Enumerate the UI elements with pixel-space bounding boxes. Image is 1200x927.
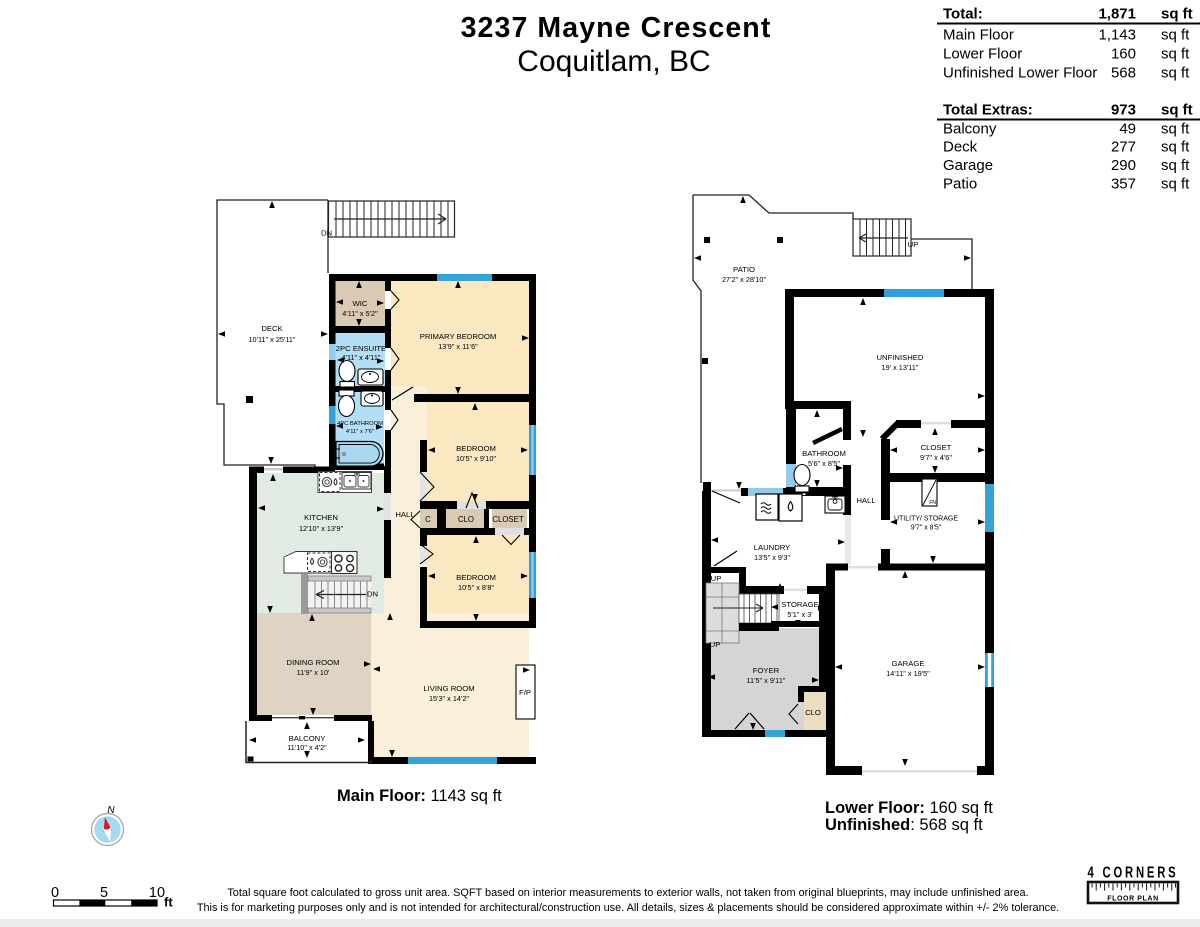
svg-text:UP: UP bbox=[710, 640, 721, 649]
svg-text:HALL: HALL bbox=[395, 510, 415, 519]
svg-text:N: N bbox=[107, 805, 115, 816]
svg-text:9'7" x 8'5": 9'7" x 8'5" bbox=[911, 525, 942, 532]
svg-text:160: 160 bbox=[1111, 46, 1136, 63]
svg-text:1,871: 1,871 bbox=[1098, 6, 1136, 23]
svg-text:DN: DN bbox=[321, 229, 332, 238]
svg-text:10'5" x 8'8": 10'5" x 8'8" bbox=[458, 583, 494, 592]
svg-text:5: 5 bbox=[100, 885, 108, 901]
svg-text:sq ft: sq ft bbox=[1161, 46, 1190, 63]
svg-text:3237 Mayne Crescent: 3237 Mayne Crescent bbox=[461, 12, 772, 44]
svg-text:Deck: Deck bbox=[943, 139, 978, 156]
svg-text:9'7" x 4'6": 9'7" x 4'6" bbox=[920, 453, 952, 462]
svg-text:sq ft: sq ft bbox=[1161, 65, 1190, 82]
svg-text:This is for marketing purposes: This is for marketing purposes only and … bbox=[197, 902, 1059, 914]
svg-text:19' x 13'11": 19' x 13'11" bbox=[882, 363, 919, 372]
svg-text:sq ft: sq ft bbox=[1161, 176, 1190, 193]
svg-text:UP: UP bbox=[711, 574, 722, 583]
svg-text:CLO: CLO bbox=[805, 708, 821, 717]
svg-text:CLO: CLO bbox=[458, 515, 474, 524]
svg-text:CLOSET: CLOSET bbox=[921, 443, 952, 452]
svg-text:Lower Floor: Lower Floor bbox=[943, 46, 1022, 63]
svg-text:FOYER: FOYER bbox=[753, 666, 780, 675]
svg-text:DINING ROOM: DINING ROOM bbox=[287, 658, 340, 667]
svg-text:1,143: 1,143 bbox=[1098, 27, 1136, 44]
svg-text:12'10" x 13'9": 12'10" x 13'9" bbox=[299, 524, 343, 533]
svg-text:HALL: HALL bbox=[856, 496, 876, 505]
svg-text:LIVING ROOM: LIVING ROOM bbox=[423, 684, 474, 693]
svg-text:11'10" x 4'2": 11'10" x 4'2" bbox=[287, 743, 327, 752]
svg-text:5'6" x 8'5": 5'6" x 8'5" bbox=[808, 459, 840, 468]
svg-text:Main Floor: Main Floor bbox=[943, 27, 1014, 44]
svg-text:10'5" x 9'10": 10'5" x 9'10" bbox=[456, 454, 496, 463]
svg-text:STORAGE: STORAGE bbox=[781, 600, 818, 609]
svg-text:Unfinished: 568 sq ft: Unfinished: 568 sq ft bbox=[825, 816, 983, 834]
svg-text:F/P: F/P bbox=[519, 688, 531, 697]
svg-text:Total square foot calculated t: Total square foot calculated to gross un… bbox=[227, 887, 1028, 899]
svg-text:4'11" x 4'11": 4'11" x 4'11" bbox=[342, 353, 381, 362]
svg-text:sq ft: sq ft bbox=[1161, 6, 1193, 23]
svg-text:FN: FN bbox=[929, 500, 936, 506]
svg-text:10'11" x 25'11": 10'11" x 25'11" bbox=[248, 335, 295, 344]
svg-text:CLOSET: CLOSET bbox=[492, 515, 523, 524]
svg-text:4'11" x 7'6": 4'11" x 7'6" bbox=[346, 429, 374, 435]
svg-text:0: 0 bbox=[51, 885, 59, 901]
svg-text:PATIO: PATIO bbox=[733, 265, 755, 274]
svg-text:KITCHEN: KITCHEN bbox=[304, 513, 338, 522]
svg-text:UTILITY/ STORAGE: UTILITY/ STORAGE bbox=[894, 516, 958, 523]
svg-text:BATHROOM: BATHROOM bbox=[802, 449, 846, 458]
svg-text:BEDROOM: BEDROOM bbox=[456, 444, 496, 453]
svg-text:568: 568 bbox=[1111, 65, 1136, 82]
svg-text:2PC ENSUITE: 2PC ENSUITE bbox=[336, 344, 386, 353]
svg-text:11'5" x 9'11": 11'5" x 9'11" bbox=[747, 676, 786, 685]
svg-text:4'11" x 5'2": 4'11" x 5'2" bbox=[342, 309, 378, 318]
svg-text:sq ft: sq ft bbox=[1161, 157, 1190, 174]
svg-text:Unfinished Lower Floor: Unfinished Lower Floor bbox=[943, 65, 1097, 82]
svg-text:Garage: Garage bbox=[943, 157, 993, 174]
svg-text:sq ft: sq ft bbox=[1161, 139, 1190, 156]
svg-text:Lower Floor: 160 sq ft: Lower Floor: 160 sq ft bbox=[825, 799, 993, 817]
svg-text:11'9" x 10': 11'9" x 10' bbox=[297, 668, 330, 677]
svg-text:290: 290 bbox=[1111, 157, 1136, 174]
svg-text:DECK: DECK bbox=[261, 324, 283, 333]
svg-text:WIC: WIC bbox=[353, 299, 368, 308]
svg-text:Balcony: Balcony bbox=[943, 121, 997, 138]
svg-text:49: 49 bbox=[1119, 121, 1136, 138]
svg-text:GARAGE: GARAGE bbox=[892, 659, 925, 668]
svg-text:FLOOR PLAN: FLOOR PLAN bbox=[1107, 896, 1159, 903]
svg-text:13'5" x 9'3": 13'5" x 9'3" bbox=[754, 553, 790, 562]
svg-text:UP: UP bbox=[908, 240, 919, 249]
svg-text:DN: DN bbox=[367, 590, 378, 599]
svg-text:Main Floor: 1143 sq ft: Main Floor: 1143 sq ft bbox=[337, 787, 502, 805]
svg-text:5'1" x 3': 5'1" x 3' bbox=[787, 610, 813, 619]
svg-text:357: 357 bbox=[1111, 176, 1136, 193]
svg-text:4 CORNERS: 4 CORNERS bbox=[1088, 865, 1179, 882]
svg-text:14'11" x 19'5": 14'11" x 19'5" bbox=[886, 669, 930, 678]
svg-text:C: C bbox=[425, 515, 431, 524]
svg-text:10: 10 bbox=[149, 885, 165, 901]
svg-text:Total Extras:: Total Extras: bbox=[943, 102, 1033, 119]
svg-text:15'3" x 14'2": 15'3" x 14'2" bbox=[429, 694, 469, 703]
svg-text:Total:: Total: bbox=[943, 6, 983, 23]
svg-text:Patio: Patio bbox=[943, 176, 977, 193]
svg-text:ft: ft bbox=[164, 895, 173, 910]
svg-text:sq ft: sq ft bbox=[1161, 121, 1190, 138]
svg-text:UNFINISHED: UNFINISHED bbox=[877, 353, 924, 362]
svg-text:BEDROOM: BEDROOM bbox=[456, 573, 496, 582]
svg-text:973: 973 bbox=[1111, 102, 1136, 119]
svg-text:27'2" x 28'10": 27'2" x 28'10" bbox=[722, 275, 766, 284]
svg-text:sq ft: sq ft bbox=[1161, 102, 1193, 119]
svg-text:LAUNDRY: LAUNDRY bbox=[754, 543, 791, 552]
svg-text:13'9" x 11'6": 13'9" x 11'6" bbox=[438, 342, 478, 351]
svg-text:sq ft: sq ft bbox=[1161, 27, 1190, 44]
svg-text:277: 277 bbox=[1111, 139, 1136, 156]
svg-text:Coquitlam, BC: Coquitlam, BC bbox=[517, 45, 710, 78]
svg-text:BALCONY: BALCONY bbox=[289, 734, 326, 743]
svg-text:PRIMARY BEDROOM: PRIMARY BEDROOM bbox=[420, 332, 497, 341]
svg-text:SINK: SINK bbox=[831, 492, 840, 496]
